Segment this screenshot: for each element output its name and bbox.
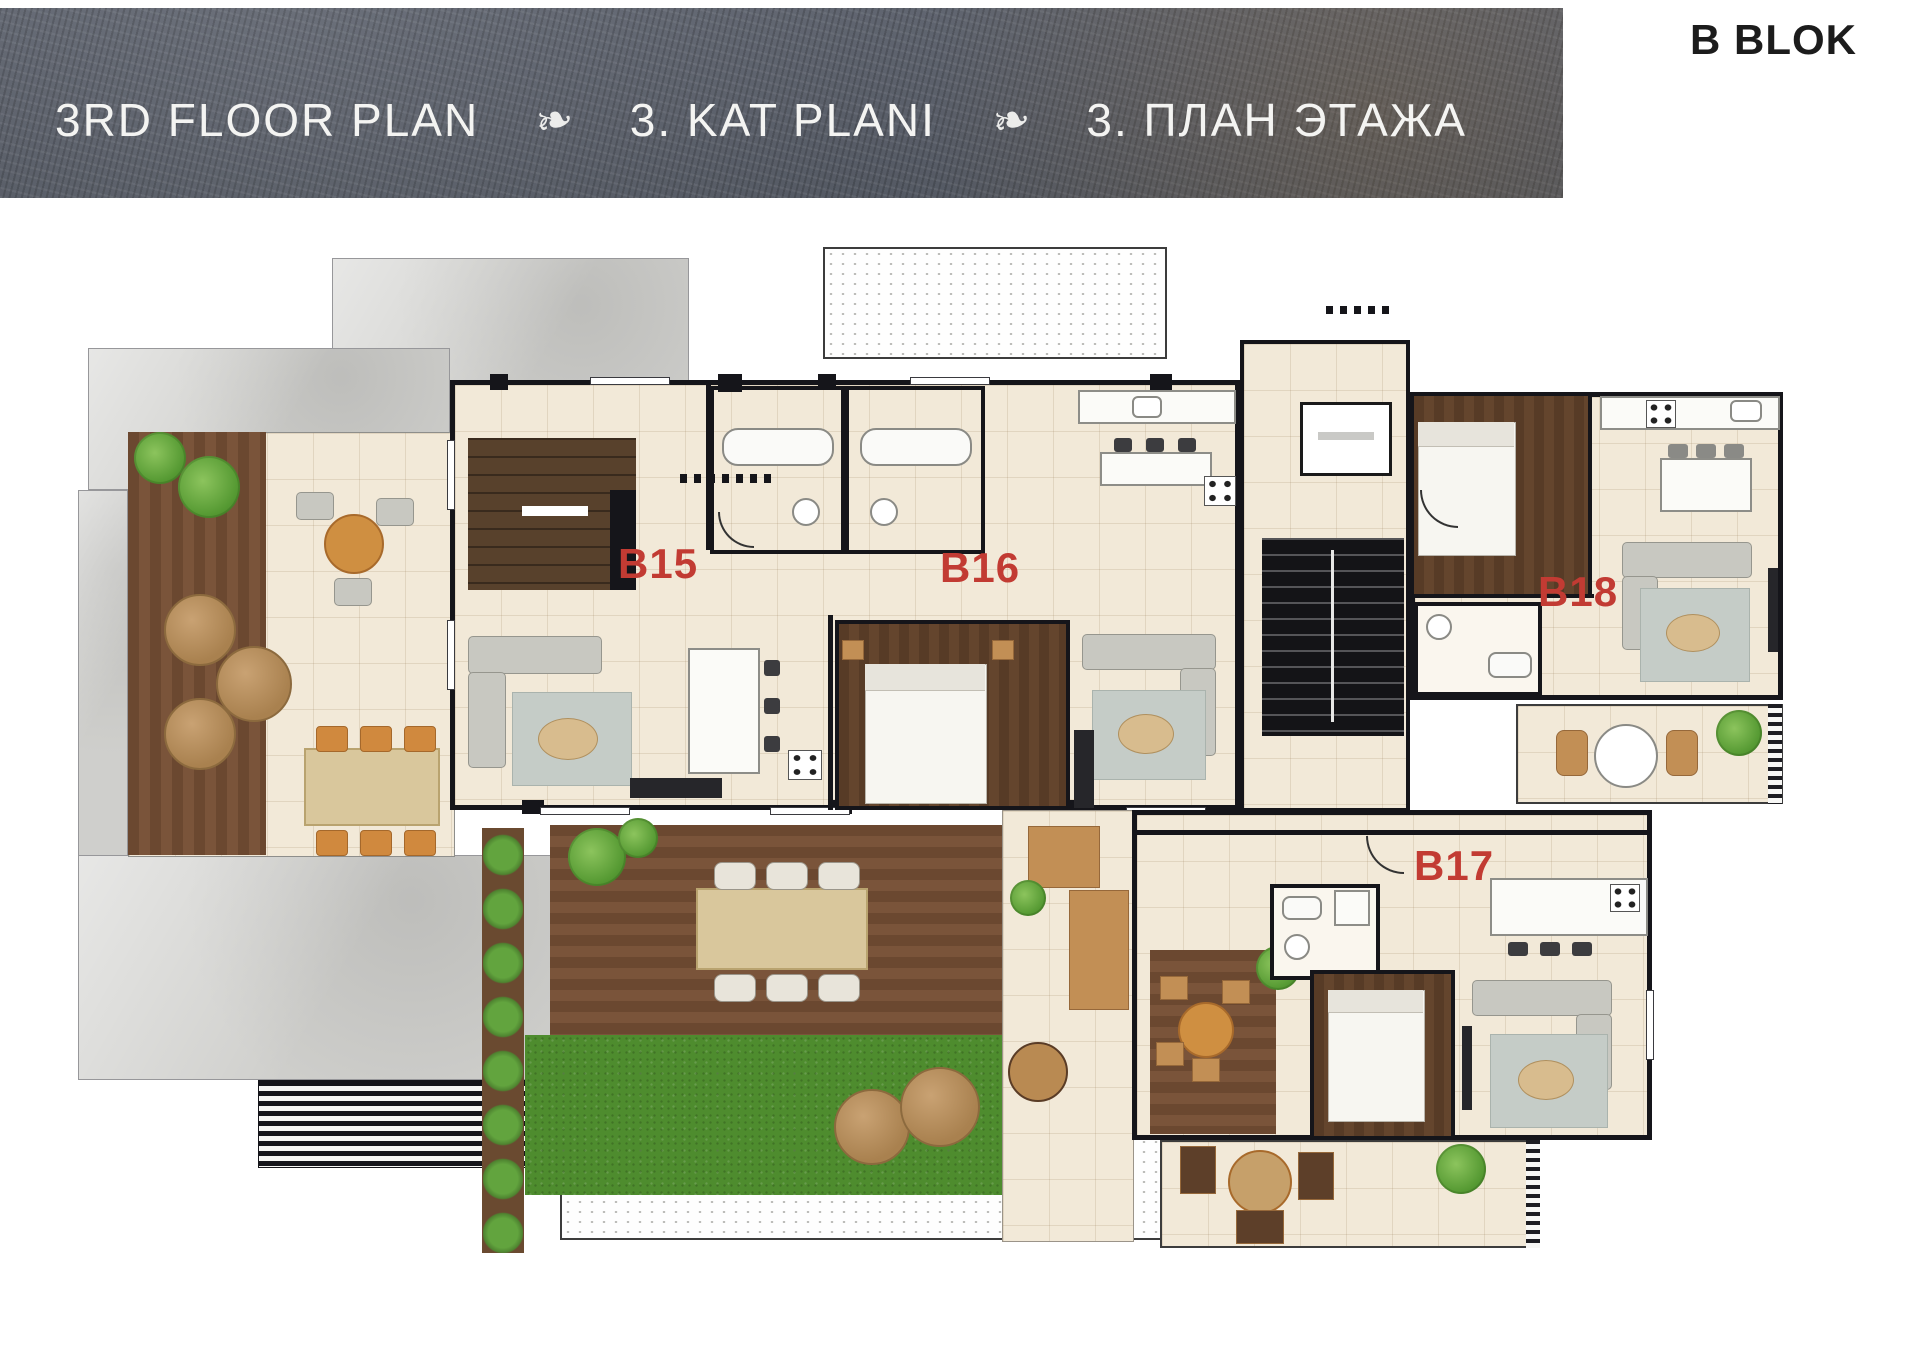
unit-label-b16: B16	[940, 544, 1020, 592]
unit-label-b17: B17	[1414, 842, 1494, 890]
tv-bench	[1074, 730, 1094, 808]
interior-wall	[828, 615, 833, 810]
toilet	[1282, 896, 1322, 920]
stove	[1646, 400, 1676, 428]
elevator-label-bar	[1318, 432, 1374, 440]
plant	[1716, 710, 1762, 756]
pouf	[900, 1067, 980, 1147]
dining-table	[1660, 458, 1752, 512]
pillow	[865, 664, 985, 691]
window	[447, 440, 455, 510]
kitchen-island	[1100, 452, 1212, 486]
dining-chair	[714, 862, 756, 890]
sofa	[1472, 980, 1612, 1016]
hedge-column	[482, 828, 524, 1253]
balcony-chair	[1180, 1146, 1216, 1194]
floor-plan: B15 B16 B18	[70, 190, 1860, 1258]
floor-plan-title-en: 3RD FLOOR PLAN	[55, 93, 479, 147]
tv-panel	[1462, 1026, 1472, 1110]
chair	[1160, 976, 1188, 1000]
outdoor-dining-table	[696, 888, 868, 970]
dining-chair	[404, 726, 436, 752]
bathtub	[722, 428, 834, 466]
kitchen-sink	[1730, 400, 1762, 422]
sofa	[1082, 634, 1216, 670]
wall-post	[490, 374, 508, 390]
sofa	[468, 636, 602, 674]
stool	[764, 736, 780, 752]
chair	[1192, 1058, 1220, 1082]
window	[590, 377, 670, 385]
concrete-terrace-left-strip	[78, 490, 128, 878]
floor-plan-page: 3RD FLOOR PLAN ❧ 3. KAT PLANI ❧ 3. ПЛАН …	[0, 0, 1920, 1358]
plant	[618, 818, 658, 858]
wood-sofa	[1069, 890, 1129, 1010]
unit-label-b18: B18	[1538, 568, 1618, 616]
pillow	[1418, 422, 1514, 447]
railing-hatch	[1526, 1140, 1540, 1248]
stove	[1610, 884, 1640, 912]
stool	[764, 698, 780, 714]
balcony-chair	[1236, 1210, 1284, 1244]
unit-label-b15: B15	[618, 540, 698, 588]
side-table	[1008, 1042, 1068, 1102]
floor-plan-title-ru: 3. ПЛАН ЭТАЖА	[1086, 93, 1467, 147]
railing-hatch	[1768, 704, 1782, 804]
chair	[334, 578, 372, 606]
coffee-table	[538, 718, 598, 760]
dining-chair	[714, 974, 756, 1002]
balcony-table	[1228, 1150, 1292, 1214]
stove	[1204, 476, 1236, 506]
round-table	[324, 514, 384, 574]
dining-chair	[404, 830, 436, 856]
dining-chair	[1724, 444, 1744, 458]
kitchen-sink	[1132, 396, 1162, 418]
chair	[376, 498, 414, 526]
sofa	[1622, 542, 1752, 578]
tv-bench	[630, 778, 722, 798]
title-row: 3RD FLOOR PLAN ❧ 3. KAT PLANI ❧ 3. ПЛАН …	[0, 59, 1467, 147]
sink	[1426, 614, 1452, 640]
plant	[1010, 880, 1046, 916]
stair-rail	[1331, 550, 1334, 722]
sofa	[468, 672, 506, 768]
sink	[870, 498, 898, 526]
dining-chair	[766, 974, 808, 1002]
b16-bathroom	[845, 386, 985, 554]
dining-chair	[766, 862, 808, 890]
bathtub	[860, 428, 972, 466]
dining-chair	[316, 726, 348, 752]
dining-chair	[360, 726, 392, 752]
sink	[1284, 934, 1310, 960]
balcony-chair	[1666, 730, 1698, 776]
coffee-table	[1118, 714, 1174, 754]
stove	[788, 750, 822, 780]
dining-chair	[316, 830, 348, 856]
coffee-table	[1518, 1060, 1574, 1100]
coffee-table	[1666, 614, 1720, 652]
stool	[1114, 438, 1132, 452]
stool	[1540, 942, 1560, 956]
stool	[1178, 438, 1196, 452]
balcony-chair	[1556, 730, 1588, 776]
window	[1646, 990, 1654, 1060]
plant	[134, 432, 186, 484]
toilet	[1488, 652, 1532, 678]
dining-chair	[1668, 444, 1688, 458]
pouf	[164, 698, 236, 770]
round-table	[1178, 1002, 1234, 1058]
stool	[1146, 438, 1164, 452]
stool	[764, 660, 780, 676]
chair	[296, 492, 334, 520]
floor-plan-title-tr: 3. KAT PLANI	[630, 93, 936, 147]
shower	[1334, 890, 1370, 926]
sink	[792, 498, 820, 526]
title-banner: 3RD FLOOR PLAN ❧ 3. KAT PLANI ❧ 3. ПЛАН …	[0, 8, 1563, 198]
stool	[1572, 942, 1592, 956]
kitchen-island	[688, 648, 760, 774]
window	[910, 377, 990, 385]
floral-ornament-icon: ❧	[530, 90, 579, 151]
chair	[1222, 980, 1250, 1004]
balcony-chair	[1298, 1152, 1334, 1200]
tv-panel	[1768, 568, 1778, 652]
railing-dots	[1326, 306, 1390, 314]
interior-wall	[1132, 830, 1652, 835]
dining-table	[304, 748, 440, 826]
nightstand	[842, 640, 864, 660]
pillow	[1328, 990, 1423, 1013]
window	[447, 620, 455, 690]
window	[540, 807, 630, 815]
block-label: B BLOK	[1690, 16, 1857, 64]
plant	[178, 456, 240, 518]
stool	[1508, 942, 1528, 956]
balcony-table	[1594, 724, 1658, 788]
stair-slot	[522, 506, 588, 516]
nightstand	[992, 640, 1014, 660]
pouf	[834, 1089, 910, 1165]
chair	[1156, 1042, 1184, 1066]
dining-chair	[1696, 444, 1716, 458]
dining-chair	[360, 830, 392, 856]
floral-ornament-icon: ❧	[987, 90, 1036, 151]
roof-terrace-top	[823, 247, 1167, 359]
dining-chair	[818, 974, 860, 1002]
wood-armchair	[1028, 826, 1100, 888]
pouf	[164, 594, 236, 666]
plant	[1436, 1144, 1486, 1194]
dining-chair	[818, 862, 860, 890]
